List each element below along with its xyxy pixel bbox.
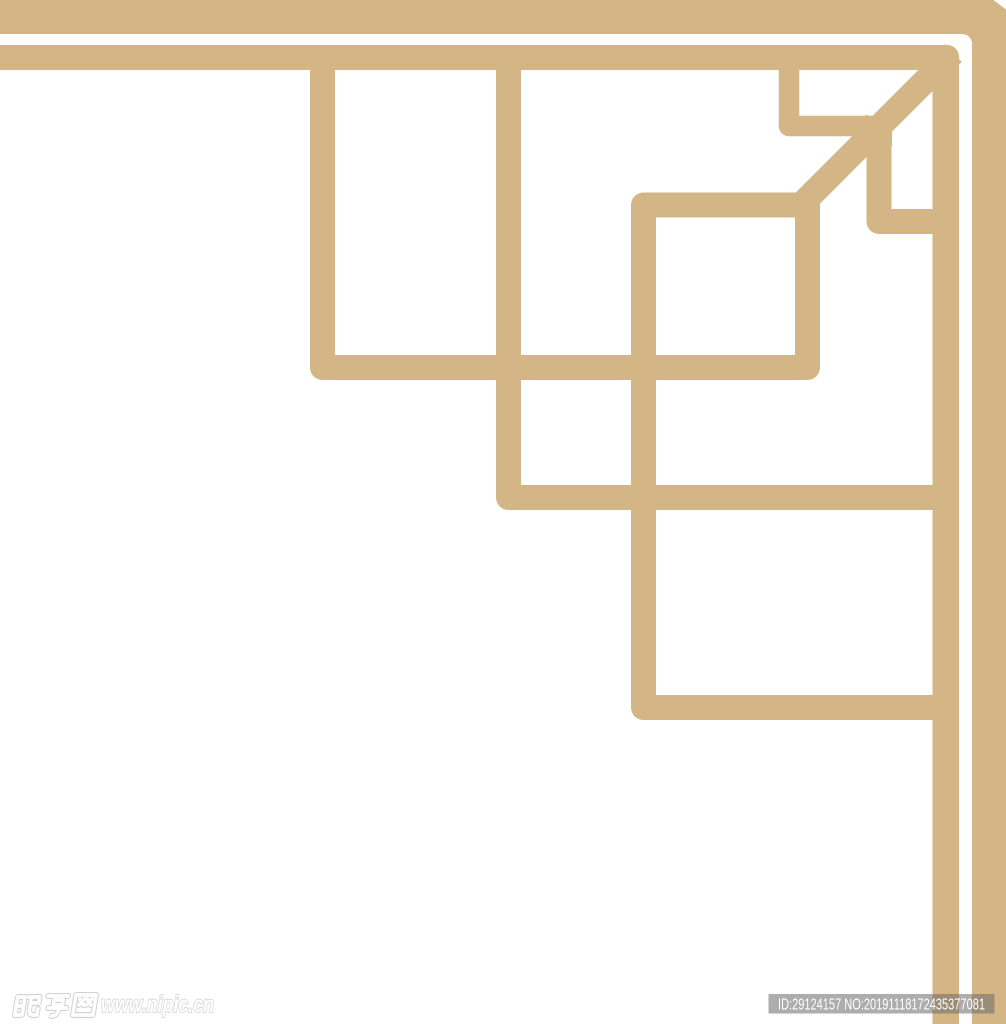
svg-text:www.nipic.cn: www.nipic.cn bbox=[101, 991, 214, 1017]
svg-text:ID:29124157 NO:201911181724353: ID:29124157 NO:20191118172435377081 bbox=[778, 997, 985, 1014]
